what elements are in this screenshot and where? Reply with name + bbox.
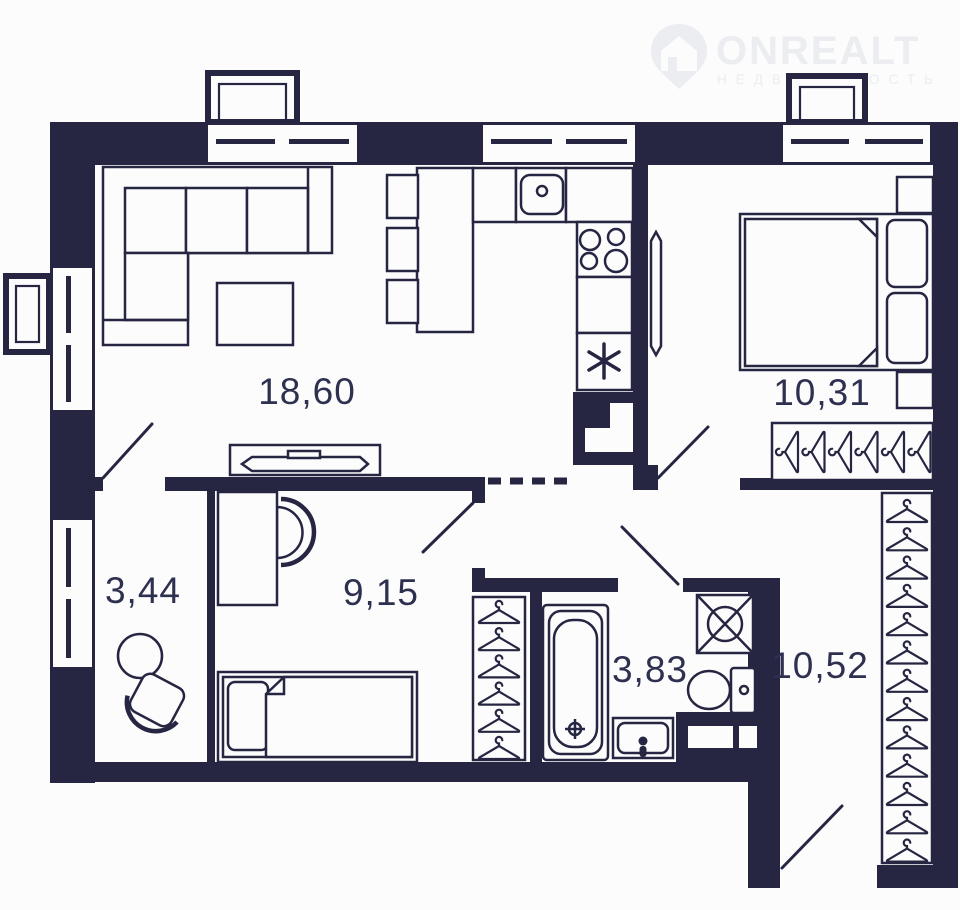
room-area-label-second: 9,15 — [343, 572, 419, 613]
dining-chair — [387, 175, 418, 218]
dining-table — [387, 168, 473, 332]
washbasin-icon — [613, 718, 673, 758]
balcony-top-right — [789, 76, 865, 122]
toilet-icon — [688, 668, 755, 713]
shower-icon — [697, 595, 753, 653]
storage-chair — [118, 668, 192, 741]
pillow — [887, 220, 927, 287]
room-area-label-storage: 3,44 — [105, 570, 181, 611]
bedroom-wall-tv-icon — [651, 232, 661, 355]
window-kitchen — [483, 122, 635, 165]
dining-chair — [387, 228, 418, 271]
round-table — [118, 634, 162, 678]
pillow — [228, 682, 268, 750]
floor-plan: ONREALT НЕДВИЖИМОСТЬ — [0, 0, 960, 910]
dining-chair — [387, 280, 418, 323]
room-area-label-bath: 3,83 — [612, 649, 688, 690]
window-left-upper — [50, 268, 95, 410]
room-area-label-bedroom: 10,31 — [773, 372, 871, 413]
window-bedroom — [783, 122, 930, 165]
bathtub-icon — [543, 605, 608, 760]
tv-stand — [230, 445, 380, 475]
single-bed — [218, 672, 417, 762]
balcony-top-left — [208, 73, 297, 122]
wardrobe-bedroom — [772, 423, 933, 480]
wardrobe-room — [473, 597, 525, 760]
door-second-room — [423, 503, 473, 552]
vent-shaft — [573, 392, 648, 465]
door-bathroom — [622, 527, 678, 584]
room-area-label-living: 18,60 — [258, 371, 356, 412]
coffee-table — [217, 283, 293, 345]
door-storage-room — [103, 424, 152, 478]
pillow — [887, 293, 927, 363]
wardrobe-hallway — [882, 493, 932, 863]
nightstand — [897, 177, 933, 213]
watermark-brand: ONREALT — [716, 29, 920, 73]
double-bed — [740, 214, 933, 370]
room-area-label-hallway: 10,52 — [771, 645, 869, 686]
kitchen-sink-icon — [521, 175, 563, 214]
balcony-left — [6, 276, 49, 352]
window-living-room — [208, 122, 357, 165]
door-bedroom — [658, 427, 708, 478]
nightstand — [897, 372, 933, 408]
floor-plan-page: ONREALT НЕДВИЖИМОСТЬ — [0, 0, 960, 910]
door-entrance — [782, 806, 842, 868]
kitchen-counter — [473, 168, 633, 390]
window-left-lower — [50, 520, 95, 667]
desk — [218, 492, 277, 605]
desk-chair — [277, 499, 314, 565]
onrealt-pin-icon — [651, 24, 707, 89]
